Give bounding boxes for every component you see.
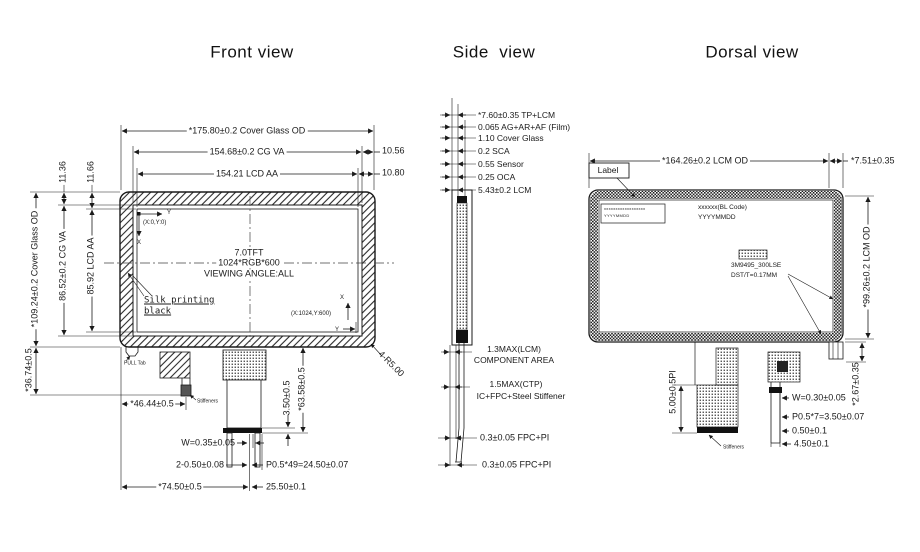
screen-spec-size: 7.0TFT [232, 249, 265, 258]
dim-front-fpc-length: *63.58±0.5 [298, 365, 307, 412]
dim-side-fpc-pi-lower: 0.3±0.05 FPC+PI [482, 461, 551, 470]
dorsal-corner-notch [829, 342, 843, 359]
dim-dorsal-pin-pitch: P0.5*7=3.50±0.07 [792, 413, 864, 422]
dorsal-fpc-upper [716, 348, 738, 385]
drawing-linework [0, 0, 920, 552]
dim-front-fpc-offset: *74.50±0.5 [156, 483, 203, 492]
dim-front-right-margin-aa: 10.80 [382, 169, 405, 178]
dim-front-stiffener-offset: *46.44±0.5 [128, 400, 175, 409]
dim-dorsal-tail-width: 4.50±0.1 [794, 440, 829, 449]
sticker-text-line1: xxxxxxxxxxxxxxxxxx [604, 207, 645, 211]
stiffener-block [181, 385, 191, 396]
tape-sample [739, 250, 767, 259]
dim-dorsal-height-od: *99.26±0.2 LCM OD [863, 225, 872, 310]
dim-dorsal-contact-width: W=0.30±0.05 [792, 394, 846, 403]
stack-layer-oca: 0.25 OCA [478, 173, 515, 182]
dorsal-fpc-lower [697, 385, 738, 427]
dim-dorsal-right-margin: *7.51±0.35 [851, 157, 894, 166]
note-bl-code: xxxxxx(BL Code) [698, 205, 747, 212]
screen-spec-viewing-angle: VIEWING ANGLE:ALL [202, 270, 296, 279]
dim-front-connector-width: 25.50±0.1 [266, 483, 306, 492]
dim-front-tail-length: *36.74±0.5 [25, 348, 34, 391]
side-fpc-tail [455, 343, 464, 462]
dim-dorsal-pi-length: 5.00±0.5PI [669, 370, 678, 413]
sticker-text-line2: YYYYMMDD [604, 214, 630, 218]
stack-layer-lcm: 5.43±0.2 LCM [478, 186, 531, 195]
corner-axis-y-label: Y [335, 327, 339, 333]
note-pull-tab: PULL Tab [124, 362, 146, 367]
dim-side-lcm-max-2: COMPONENT AREA [474, 356, 554, 365]
dim-front-pin-pitch: P0.5*49=24.50±0.07 [266, 461, 348, 470]
note-tape-spec: DST/T=0.17MM [731, 273, 777, 280]
dorsal-view-title: Dorsal view [705, 44, 798, 61]
dim-front-contact-depth: 3.50±0.5 [283, 381, 292, 416]
front-view-title: Front view [210, 44, 293, 61]
dim-front-top-margin-va: 11.36 [59, 159, 68, 185]
note-bl-date: YYYYMMDD [698, 215, 736, 222]
stack-layer-film: 0.065 AG+AR+AF (Film) [478, 123, 570, 132]
dim-front-height-od: *109.24±0.2 Cover Glass OD [31, 209, 40, 330]
dim-dorsal-contact-gap: 0.50±0.1 [792, 427, 827, 436]
screen-spec-resolution: 1024*RGB*600 [216, 259, 282, 268]
side-view-linework [438, 98, 477, 466]
fpc-connector-bar [223, 428, 262, 433]
origin-coordinates: (X:0,Y:0) [143, 220, 166, 226]
dorsal-view-linework [589, 153, 874, 447]
dim-front-width-od: *175.80±0.2 Cover Glass OD [187, 127, 308, 136]
note-label-callout: Label [598, 166, 619, 175]
note-stiffeners-dorsal: Stiffeners [723, 446, 744, 451]
dorsal-stiffener-bar [697, 427, 738, 433]
pull-tab-shape [126, 347, 138, 356]
dim-front-contact-width: W=0.35±0.05 [181, 439, 235, 448]
stack-layer-sca: 0.2 SCA [478, 147, 510, 156]
note-stiffeners-front: Stiffeners [197, 400, 218, 405]
dim-side-ctp-max-1: 1.5MAX(CTP) [490, 380, 543, 389]
dim-dorsal-width-od: *164.26±0.2 LCM OD [660, 157, 750, 166]
engineering-drawing-page: Front view *175.80±0.2 Cover Glass OD 15… [0, 0, 920, 552]
dim-front-height-va: 86.52±0.2 CG VA [59, 229, 68, 303]
origin-axis-x-label: X [137, 240, 141, 246]
side-view-title: Side view [453, 44, 535, 61]
fpc-stiffener-tab [160, 352, 190, 378]
stack-layer-cover-glass: 1.10 Cover Glass [478, 134, 544, 143]
dim-front-top-margin-aa: 11.66 [87, 159, 96, 185]
dim-side-fpc-pi-upper: 0.3±0.05 FPC+PI [480, 434, 549, 443]
dim-front-height-aa: 85.92 LCD AA [87, 235, 96, 296]
note-tape-name: 3M9495_300LSE [731, 263, 781, 270]
dim-front-width-va: 154.68±0.2 CG VA [208, 148, 287, 157]
note-silk-printing-2: black [144, 308, 171, 317]
dim-front-right-margin-va: 10.56 [382, 147, 405, 156]
dim-dorsal-tab-offset: *2.67±0.35 [852, 362, 861, 405]
dim-side-ctp-max-2: IC+FPC+Steel Stiffener [477, 392, 566, 401]
dim-side-lcm-max-1: 1.3MAX(LCM) [487, 345, 541, 354]
dim-front-width-aa: 154.21 LCD AA [214, 170, 280, 179]
fpc-main [223, 350, 266, 380]
stack-layer-sensor: 0.55 Sensor [478, 160, 524, 169]
dim-front-hole: 2-0.50±0.08 [176, 461, 224, 470]
origin-axis-y-label: Y [167, 210, 171, 216]
side-lcm-strip [457, 203, 467, 330]
note-silk-printing-1: Silk printing [144, 297, 214, 306]
corner-coordinates: (X:1024,Y:600) [291, 311, 331, 317]
stack-layer-tp-lcm: *7.60±0.35 TP+LCM [478, 111, 555, 120]
corner-axis-x-label: X [340, 295, 344, 301]
